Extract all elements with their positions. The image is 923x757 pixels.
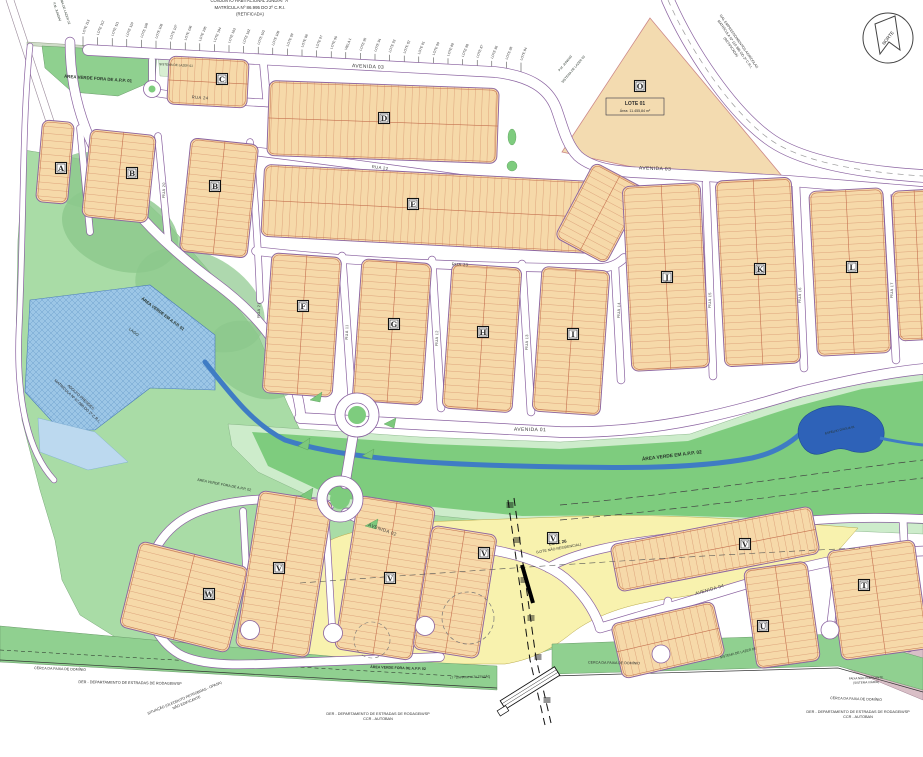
quadra-marker-C: C bbox=[217, 74, 228, 85]
green-island bbox=[507, 161, 517, 171]
quadra-letter: F bbox=[300, 302, 306, 311]
quadra-letter: J bbox=[664, 273, 669, 282]
green-island bbox=[508, 129, 516, 145]
street-label: RUA 12 bbox=[435, 330, 440, 346]
street-label: RUA 21 bbox=[257, 302, 262, 318]
quadra-marker-J: J bbox=[662, 272, 673, 283]
quadra-letter: A bbox=[57, 164, 64, 173]
quadra-letter: H bbox=[479, 328, 486, 337]
quadra-letter: V bbox=[549, 534, 556, 543]
block bbox=[179, 138, 259, 258]
quadra-marker-I: I bbox=[568, 329, 579, 340]
quadra-letter: V bbox=[275, 564, 282, 573]
street-label: RUA 14 bbox=[617, 302, 622, 318]
cul-de-sac bbox=[241, 621, 260, 640]
quadra-marker-L: L bbox=[847, 262, 858, 273]
street-label: RUA 23 bbox=[452, 262, 469, 268]
subdivision-site-plan: LOTE 113LOTE 112LOTE 111LOTE 110LOTE 109… bbox=[0, 0, 923, 757]
roundabout-island bbox=[330, 489, 350, 509]
quadra-letter: C bbox=[219, 75, 225, 84]
block bbox=[532, 266, 610, 415]
quadra-letter: B bbox=[129, 169, 135, 178]
header-line2: MATRÍCULA Nº 86.995 DO 2º C.R.I. bbox=[215, 5, 286, 10]
quadra-marker-B: B bbox=[210, 181, 221, 192]
quadra-letter: V bbox=[741, 540, 748, 549]
quadra-letter: D bbox=[381, 114, 388, 123]
quadra-letter: G bbox=[391, 320, 397, 329]
header-line3: (RETIFICADA) bbox=[236, 12, 264, 17]
quadra-marker-U: U bbox=[758, 621, 769, 632]
quadra-letter: V bbox=[480, 549, 487, 558]
street-label: RUA 17 bbox=[890, 282, 895, 298]
quadra-marker-K: K bbox=[755, 264, 766, 275]
quadra-marker-V: V bbox=[274, 563, 285, 574]
street-label: AVENIDA 03 bbox=[639, 165, 671, 172]
quadra-marker-F: F bbox=[298, 301, 309, 312]
street-label: AVENIDA 01 bbox=[514, 427, 546, 434]
quadra-marker-V: V bbox=[548, 533, 559, 544]
quadra-letter: B bbox=[212, 182, 218, 191]
quadra-marker-D: D bbox=[379, 113, 390, 124]
quadra-marker-E: E bbox=[408, 199, 419, 210]
compass-rose: NORTE bbox=[863, 13, 913, 63]
quadra-marker-V: V bbox=[740, 539, 751, 550]
quadra-marker-T: T bbox=[859, 580, 870, 591]
quadra-letter: W bbox=[204, 590, 214, 599]
street-label: RUA 16 bbox=[798, 287, 803, 303]
lote01-name: LOTE 01 bbox=[625, 101, 646, 107]
street-label: RUA 11 bbox=[345, 324, 350, 339]
quadra-marker-A: A bbox=[56, 163, 67, 174]
quadra-marker-B: B bbox=[127, 168, 138, 179]
lote01-label: LOTE 01 Área: 11.455,84 m² bbox=[606, 98, 664, 115]
street-label: RUA 13 bbox=[525, 334, 530, 350]
block bbox=[262, 253, 342, 398]
quadra-letter: K bbox=[757, 265, 764, 274]
cul-de-sac bbox=[324, 624, 343, 643]
cul-de-sac bbox=[416, 617, 435, 636]
quadra-letter: V bbox=[386, 574, 393, 583]
roundabout-island bbox=[348, 406, 366, 424]
cul-de-sac bbox=[652, 645, 670, 663]
block bbox=[352, 259, 432, 406]
quadra-letter: I bbox=[571, 330, 575, 339]
street-label: RUA 20 bbox=[162, 182, 167, 198]
quadra-marker-O: O bbox=[635, 81, 646, 92]
road-surface bbox=[263, 58, 267, 103]
quadra-letter: L bbox=[849, 263, 855, 272]
quadra-marker-V: V bbox=[385, 573, 396, 584]
street-label: RUA 15 bbox=[708, 292, 713, 308]
quadra-marker-V: V bbox=[479, 548, 490, 559]
quadra-marker-W: W bbox=[204, 589, 215, 600]
cul-de-sac bbox=[821, 621, 839, 639]
block bbox=[82, 129, 157, 223]
quadra-marker-G: G bbox=[389, 319, 400, 330]
quadra-letter: T bbox=[861, 581, 867, 590]
lote01-area: Área: 11.455,84 m² bbox=[620, 109, 651, 113]
quadra-letter: U bbox=[760, 622, 767, 631]
quadra-marker-H: H bbox=[478, 327, 489, 338]
quadra-letter: E bbox=[410, 200, 416, 209]
header-line1: CONJUNTO HABITACIONAL JUNDIAÍ "A" bbox=[211, 0, 290, 3]
annotation-text: FAIXA NÃO EDIFICANTE(SISTEMA VIÁRIO) bbox=[849, 674, 884, 685]
site-plan-svg: LOTE 113LOTE 112LOTE 111LOTE 110LOTE 109… bbox=[0, 0, 923, 757]
block bbox=[743, 561, 820, 669]
block bbox=[827, 539, 923, 660]
quadra-letter: O bbox=[637, 82, 644, 91]
